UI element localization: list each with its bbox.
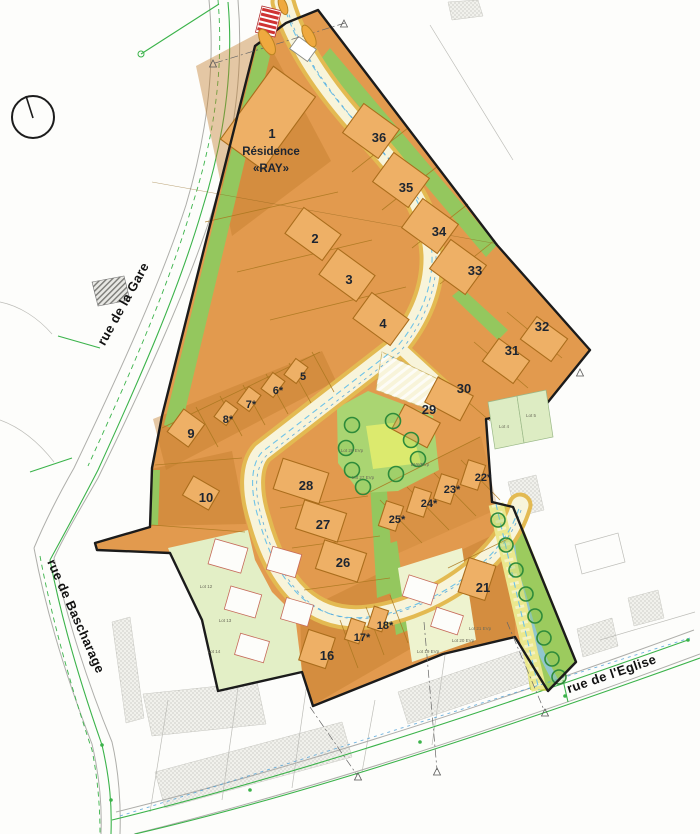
lot-label-4: 4 — [379, 316, 387, 331]
lot-label-34: 34 — [432, 224, 447, 239]
lot-label-31: 31 — [505, 343, 519, 358]
micro-label-9: Lot 4 — [499, 424, 510, 429]
residence-name-line1: Résidence — [242, 146, 300, 158]
micro-label-1: Lot 13 — [219, 618, 232, 623]
lot-label-3: 3 — [345, 272, 352, 287]
lotissement-plan-map: Lot 12Lot 13Lot 14Lot 19 EVpLot 20 EVpLo… — [0, 0, 700, 834]
lot-label-26: 26 — [336, 555, 350, 570]
lot-label-36: 36 — [372, 130, 386, 145]
lot-label-25star: 25* — [389, 514, 406, 526]
lot-label-2: 2 — [311, 231, 318, 246]
lot-label-18star: 18* — [377, 620, 394, 632]
residence-name-line2: «RAY» — [253, 163, 289, 175]
lot-label-6star: 6* — [273, 385, 284, 397]
micro-label-3: Lot 19 EVp — [417, 649, 440, 654]
lot-label-28: 28 — [299, 478, 313, 493]
micro-label-10: Lot 5 — [526, 413, 537, 418]
micro-label-7: Lot 27 EVp — [352, 475, 375, 480]
lot-label-33: 33 — [468, 263, 482, 278]
lot-label-29: 29 — [422, 402, 436, 417]
lot-label-5: 5 — [300, 371, 306, 383]
lot-label-8star: 8* — [223, 414, 234, 426]
site-plan-page: Lot 12Lot 13Lot 14Lot 19 EVpLot 20 EVpLo… — [0, 0, 700, 834]
lot-label-22star: 22* — [475, 472, 492, 484]
lot-label-35: 35 — [399, 180, 413, 195]
lot-label-16: 16 — [320, 648, 334, 663]
lot-label-10: 10 — [199, 490, 213, 505]
micro-label-8: EVp/EVp — [411, 462, 430, 467]
micro-label-6: Lot 26 EVp — [341, 448, 364, 453]
lot-label-9: 9 — [187, 426, 194, 441]
lot-label-30: 30 — [457, 381, 471, 396]
micro-label-4: Lot 20 EVp — [452, 638, 475, 643]
lot-label-23star: 23* — [444, 484, 461, 496]
micro-label-5: Lot 21 EVp — [469, 626, 492, 631]
micro-label-2: Lot 14 — [208, 649, 221, 654]
lot-label-21: 21 — [476, 580, 490, 595]
lot-label-17star: 17* — [354, 632, 371, 644]
micro-label-0: Lot 12 — [200, 584, 213, 589]
lot-label-27: 27 — [316, 517, 330, 532]
lot-label-1: 1 — [268, 126, 275, 141]
lot-label-7star: 7* — [246, 399, 257, 411]
lot-label-32: 32 — [535, 319, 549, 334]
lot-label-24star: 24* — [421, 498, 438, 510]
